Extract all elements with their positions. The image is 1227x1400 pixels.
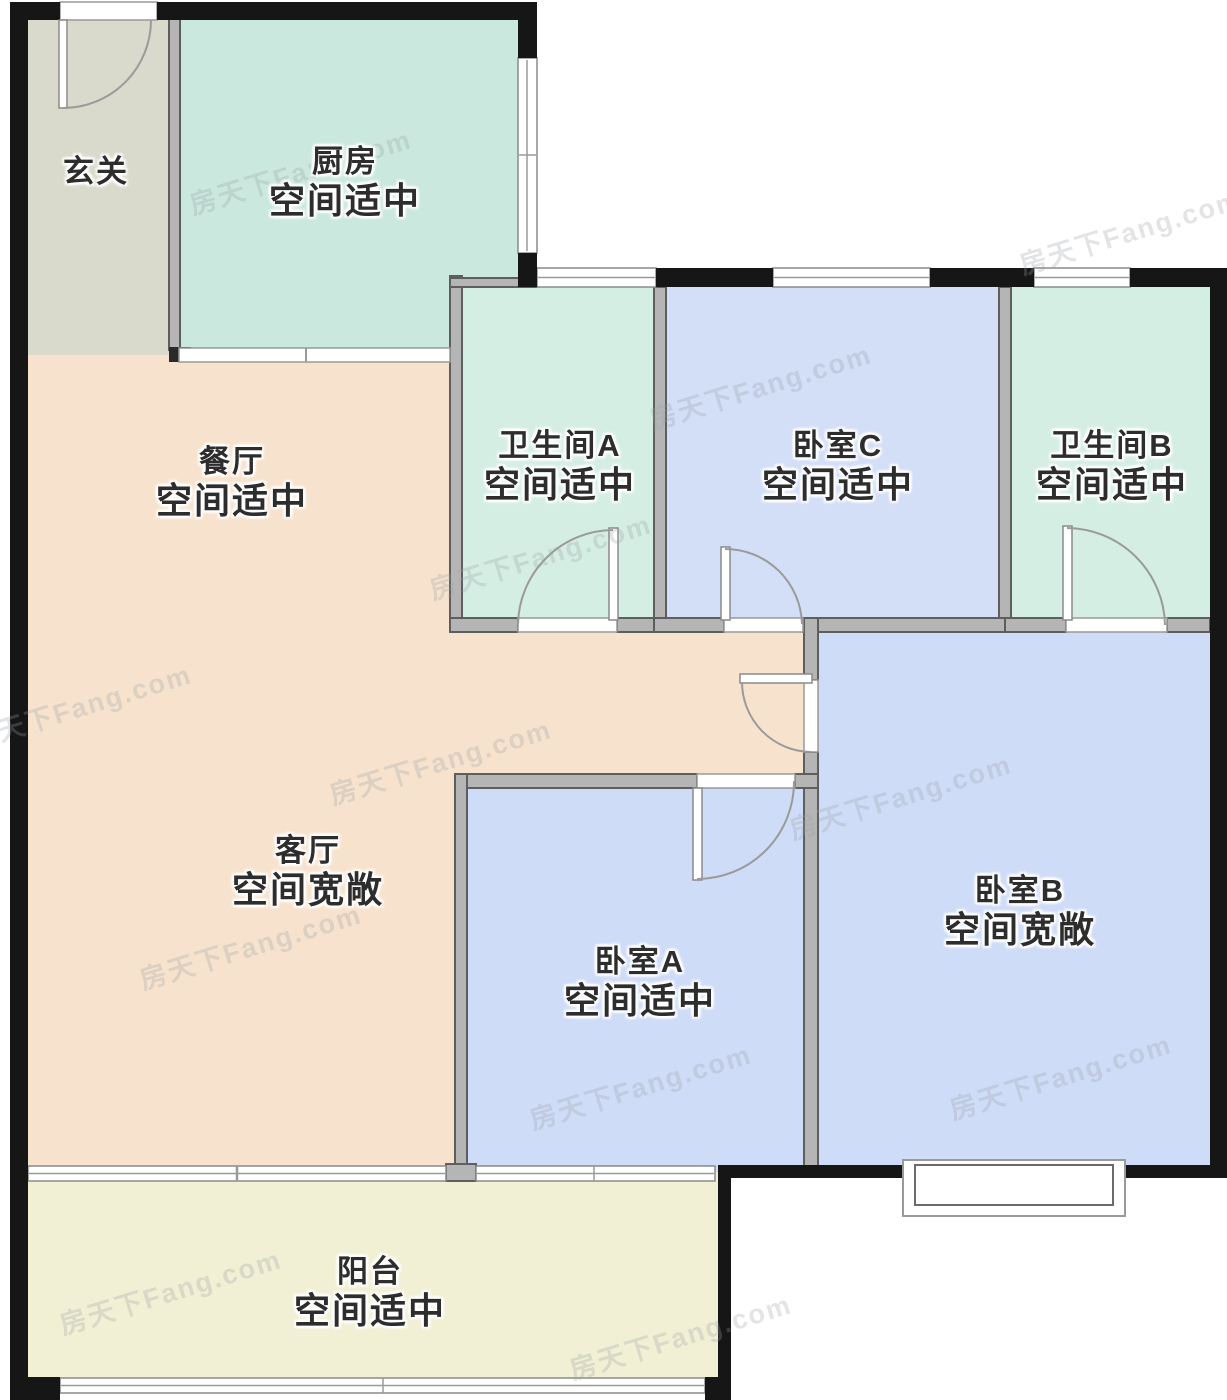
wall-stub-balcony — [446, 1164, 476, 1181]
wall-balcony-right — [718, 1165, 731, 1400]
wall-left — [10, 2, 28, 1400]
floor-corridor — [450, 628, 810, 778]
floor-plan-drawing — [0, 0, 1227, 1400]
wall-bedroom-c-bottom-right — [803, 618, 1011, 632]
opening-bathroom-a — [518, 618, 617, 632]
opening-bathroom-b — [1066, 618, 1167, 632]
wall-top-band-1 — [656, 268, 773, 287]
wall-kitchen-right-top — [518, 2, 537, 58]
wall-bathroom-b-bottom-left — [1005, 618, 1066, 632]
opening-bedroom-a — [697, 774, 795, 788]
floor-bedroom-b — [810, 628, 1210, 1168]
floor-plan: 房天下Fang.com 房天下Fang.com 房天下Fang.com 房天下F… — [0, 0, 1227, 1400]
wall-bedroom-a-left — [455, 774, 467, 1172]
floor-bedroom-c — [660, 287, 1005, 628]
wall-bedroom-a-bedroom-b — [804, 788, 818, 1172]
wall-balcony-corner-right — [705, 1377, 731, 1400]
door-leaf-bedroom-c — [721, 547, 730, 620]
floor-dining-living — [28, 355, 455, 1172]
bay-window-bedroom-b — [903, 1160, 1125, 1216]
wall-bottom-1 — [718, 1165, 915, 1178]
wall-right — [1210, 268, 1227, 1178]
wall-bedroom-a-top-right — [795, 774, 818, 788]
door-leaf-bedroom-b — [740, 674, 812, 683]
wall-balcony-corner-left — [10, 1377, 60, 1400]
wall-corridor-bedroom-b-upper — [804, 618, 818, 680]
floor-balcony — [28, 1172, 718, 1385]
door-leaf-bathroom-a — [609, 528, 618, 620]
wall-bathroom-a-bedroom-c — [654, 287, 666, 628]
wall-bedroom-c-bottom-left — [654, 618, 724, 632]
wall-bathroom-a-left — [450, 276, 462, 628]
wall-kitchen-right-corner — [518, 253, 537, 287]
wall-top-band-2 — [930, 268, 1034, 287]
floor-bathroom-a — [450, 278, 660, 628]
opening-kitchen — [179, 348, 450, 362]
opening-entrance — [60, 2, 157, 20]
floor-bathroom-b — [1005, 287, 1210, 628]
wall-bedroom-a-top-left — [455, 774, 697, 788]
wall-bathroom-a-bottom-left — [450, 618, 518, 632]
floor-bedroom-a — [455, 778, 810, 1172]
door-leaf-bathroom-b — [1063, 526, 1072, 620]
floor-entry — [28, 18, 179, 358]
opening-bedroom-b — [804, 680, 818, 752]
door-leaf-bedroom-a — [693, 788, 702, 880]
wall-bottom-2 — [1113, 1165, 1210, 1178]
door-leaf-entrance — [59, 20, 67, 108]
wall-entry-kitchen — [169, 14, 180, 350]
opening-bedroom-c — [724, 618, 803, 632]
wall-bathroom-b-bottom-right — [1167, 618, 1210, 632]
wall-bedroom-c-bathroom-b — [999, 287, 1011, 628]
wall-top-kitchen — [157, 2, 537, 20]
